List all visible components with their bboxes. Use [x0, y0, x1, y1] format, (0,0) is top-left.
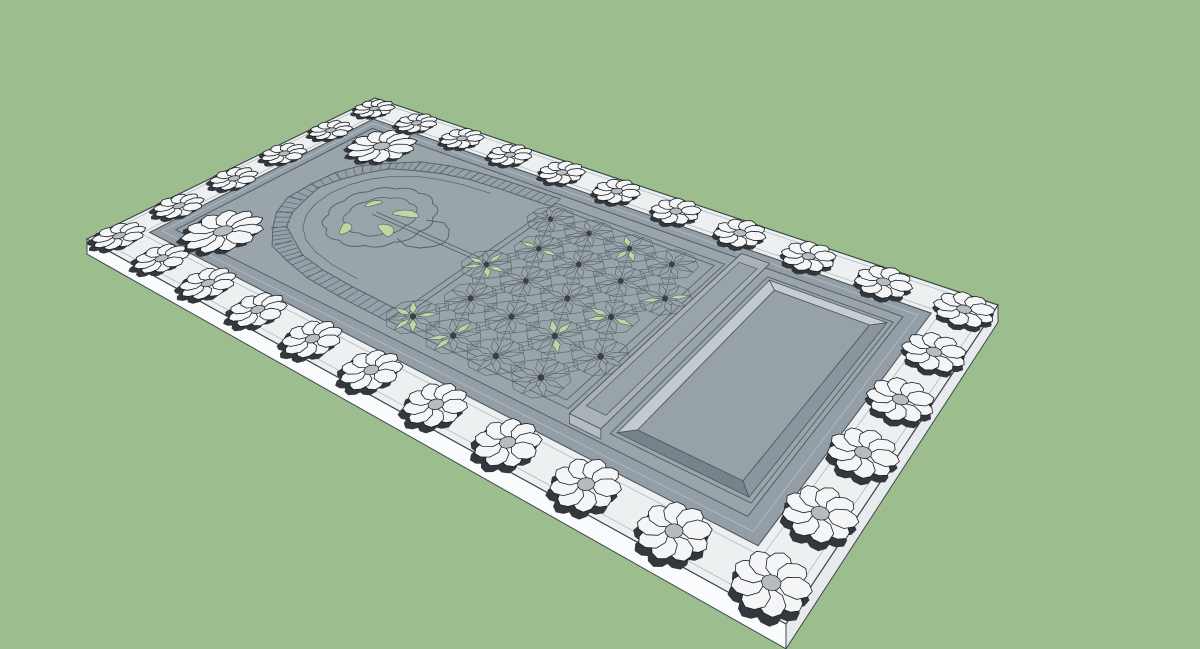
rosette-center [369, 106, 379, 110]
star-center [627, 246, 633, 252]
sketchup-viewport[interactable] [0, 0, 1200, 649]
rosette-petal [420, 121, 437, 127]
rosette-center [665, 524, 683, 539]
rosette-center [411, 121, 421, 126]
rosette-center [556, 170, 567, 176]
star-center [468, 295, 474, 301]
rosette-petal [514, 153, 532, 160]
star-center [410, 313, 416, 319]
star-center [537, 374, 544, 381]
star-center [552, 333, 559, 340]
viewport-canvas[interactable] [0, 0, 1200, 649]
rosette-center [734, 230, 747, 237]
star-center [586, 231, 592, 237]
rosette-center [611, 188, 623, 194]
star-center [523, 278, 529, 284]
star-center [536, 246, 542, 252]
rosette-petal [681, 206, 702, 215]
star-center [597, 353, 604, 360]
star-center [548, 216, 554, 222]
star-center [564, 295, 570, 301]
star-center [662, 295, 668, 301]
rosette-center [505, 152, 516, 157]
star-center [608, 314, 614, 320]
star-center [450, 332, 456, 338]
star-center [508, 313, 514, 319]
rosette-center [457, 136, 467, 141]
star-center [576, 261, 582, 267]
star-center [669, 261, 675, 267]
rosette-center [577, 478, 594, 491]
rosette-petal [512, 442, 537, 459]
star-center [492, 353, 499, 360]
star-center [618, 278, 624, 284]
star-center [483, 262, 489, 268]
rosette-center [670, 208, 682, 214]
